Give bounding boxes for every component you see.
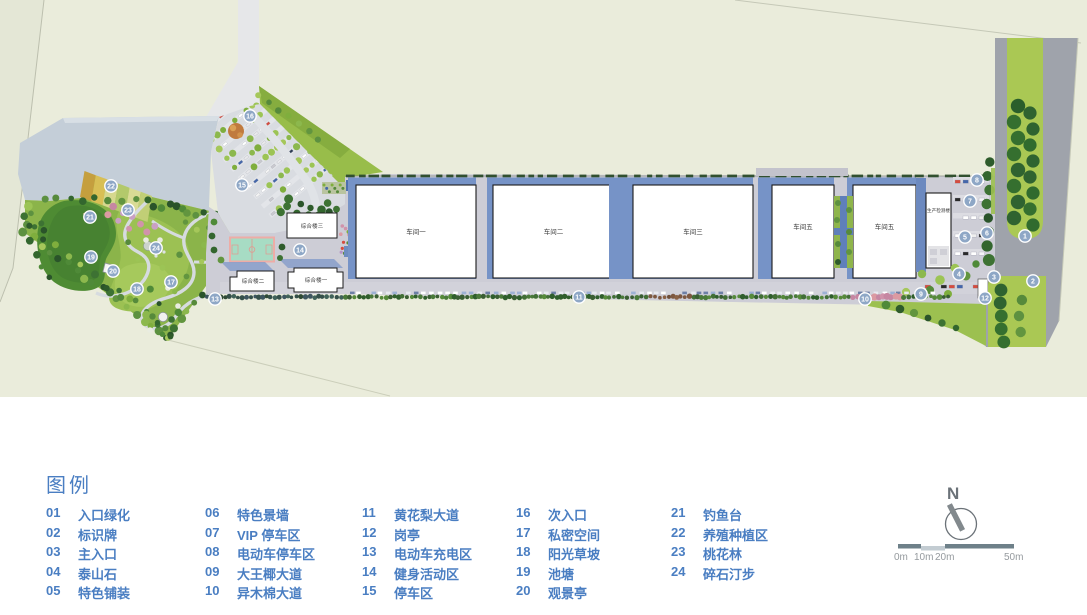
svg-text:13: 13 — [211, 296, 219, 303]
svg-text:车间二: 车间二 — [544, 227, 564, 236]
svg-text:综合楼一: 综合楼一 — [305, 276, 328, 284]
svg-text:N: N — [947, 484, 959, 503]
svg-text:6: 6 — [985, 230, 989, 237]
svg-text:22: 22 — [107, 183, 115, 190]
svg-text:18: 18 — [133, 286, 141, 293]
svg-text:5: 5 — [963, 234, 967, 241]
svg-text:车间五: 车间五 — [793, 222, 813, 231]
svg-text:8: 8 — [975, 177, 979, 184]
svg-text:12: 12 — [981, 295, 989, 302]
svg-text:综合楼二: 综合楼二 — [242, 277, 265, 285]
svg-text:综合楼三: 综合楼三 — [301, 222, 324, 230]
svg-text:10: 10 — [861, 296, 869, 303]
svg-text:2: 2 — [1031, 278, 1035, 285]
svg-text:车间三: 车间三 — [683, 227, 703, 236]
svg-text:4: 4 — [957, 271, 961, 278]
svg-text:23: 23 — [124, 207, 132, 214]
svg-text:15: 15 — [238, 182, 246, 189]
svg-text:24: 24 — [152, 245, 160, 252]
svg-text:1: 1 — [1023, 233, 1027, 240]
svg-text:14: 14 — [296, 247, 304, 254]
svg-text:9: 9 — [919, 291, 923, 298]
svg-text:生产检测楼: 生产检测楼 — [927, 207, 950, 214]
svg-text:11: 11 — [575, 294, 583, 301]
svg-text:车间五: 车间五 — [875, 222, 895, 231]
svg-text:17: 17 — [167, 279, 175, 286]
svg-text:车间一: 车间一 — [406, 227, 426, 236]
svg-text:7: 7 — [968, 198, 972, 205]
svg-text:16: 16 — [246, 113, 254, 120]
svg-text:3: 3 — [992, 274, 996, 281]
svg-text:20: 20 — [109, 268, 117, 275]
svg-text:19: 19 — [87, 254, 95, 261]
svg-text:21: 21 — [86, 214, 94, 221]
